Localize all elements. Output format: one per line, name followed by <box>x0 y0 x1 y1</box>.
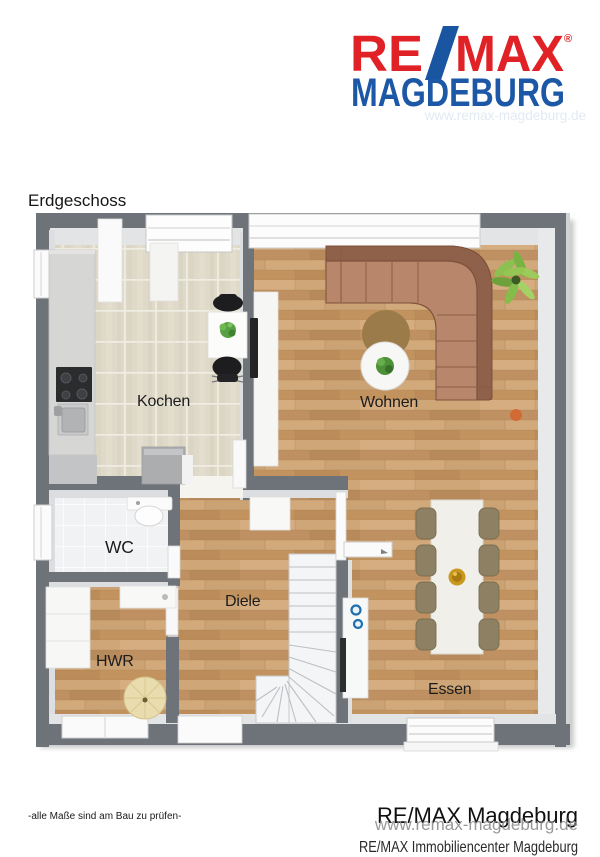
svg-text:Kochen: Kochen <box>137 393 190 410</box>
svg-text:Diele: Diele <box>225 593 261 610</box>
svg-text:-alle Maße sind am Bau zu prüf: -alle Maße sind am Bau zu prüfen- <box>28 811 181 822</box>
svg-text:HWR: HWR <box>96 653 134 670</box>
svg-text:®: ® <box>564 33 572 45</box>
svg-text:www.remax-magdeburg.de: www.remax-magdeburg.de <box>374 815 578 834</box>
svg-text:RE/MAX Immobiliencenter Magdeb: RE/MAX Immobiliencenter Magdeburg <box>359 839 578 856</box>
svg-text:WC: WC <box>105 537 134 557</box>
svg-text:Erdgeschoss: Erdgeschoss <box>28 191 126 210</box>
svg-text:www.remax-magdeburg.de: www.remax-magdeburg.de <box>424 108 586 123</box>
svg-text:Essen: Essen <box>428 681 471 698</box>
svg-text:Wohnen: Wohnen <box>360 394 418 411</box>
